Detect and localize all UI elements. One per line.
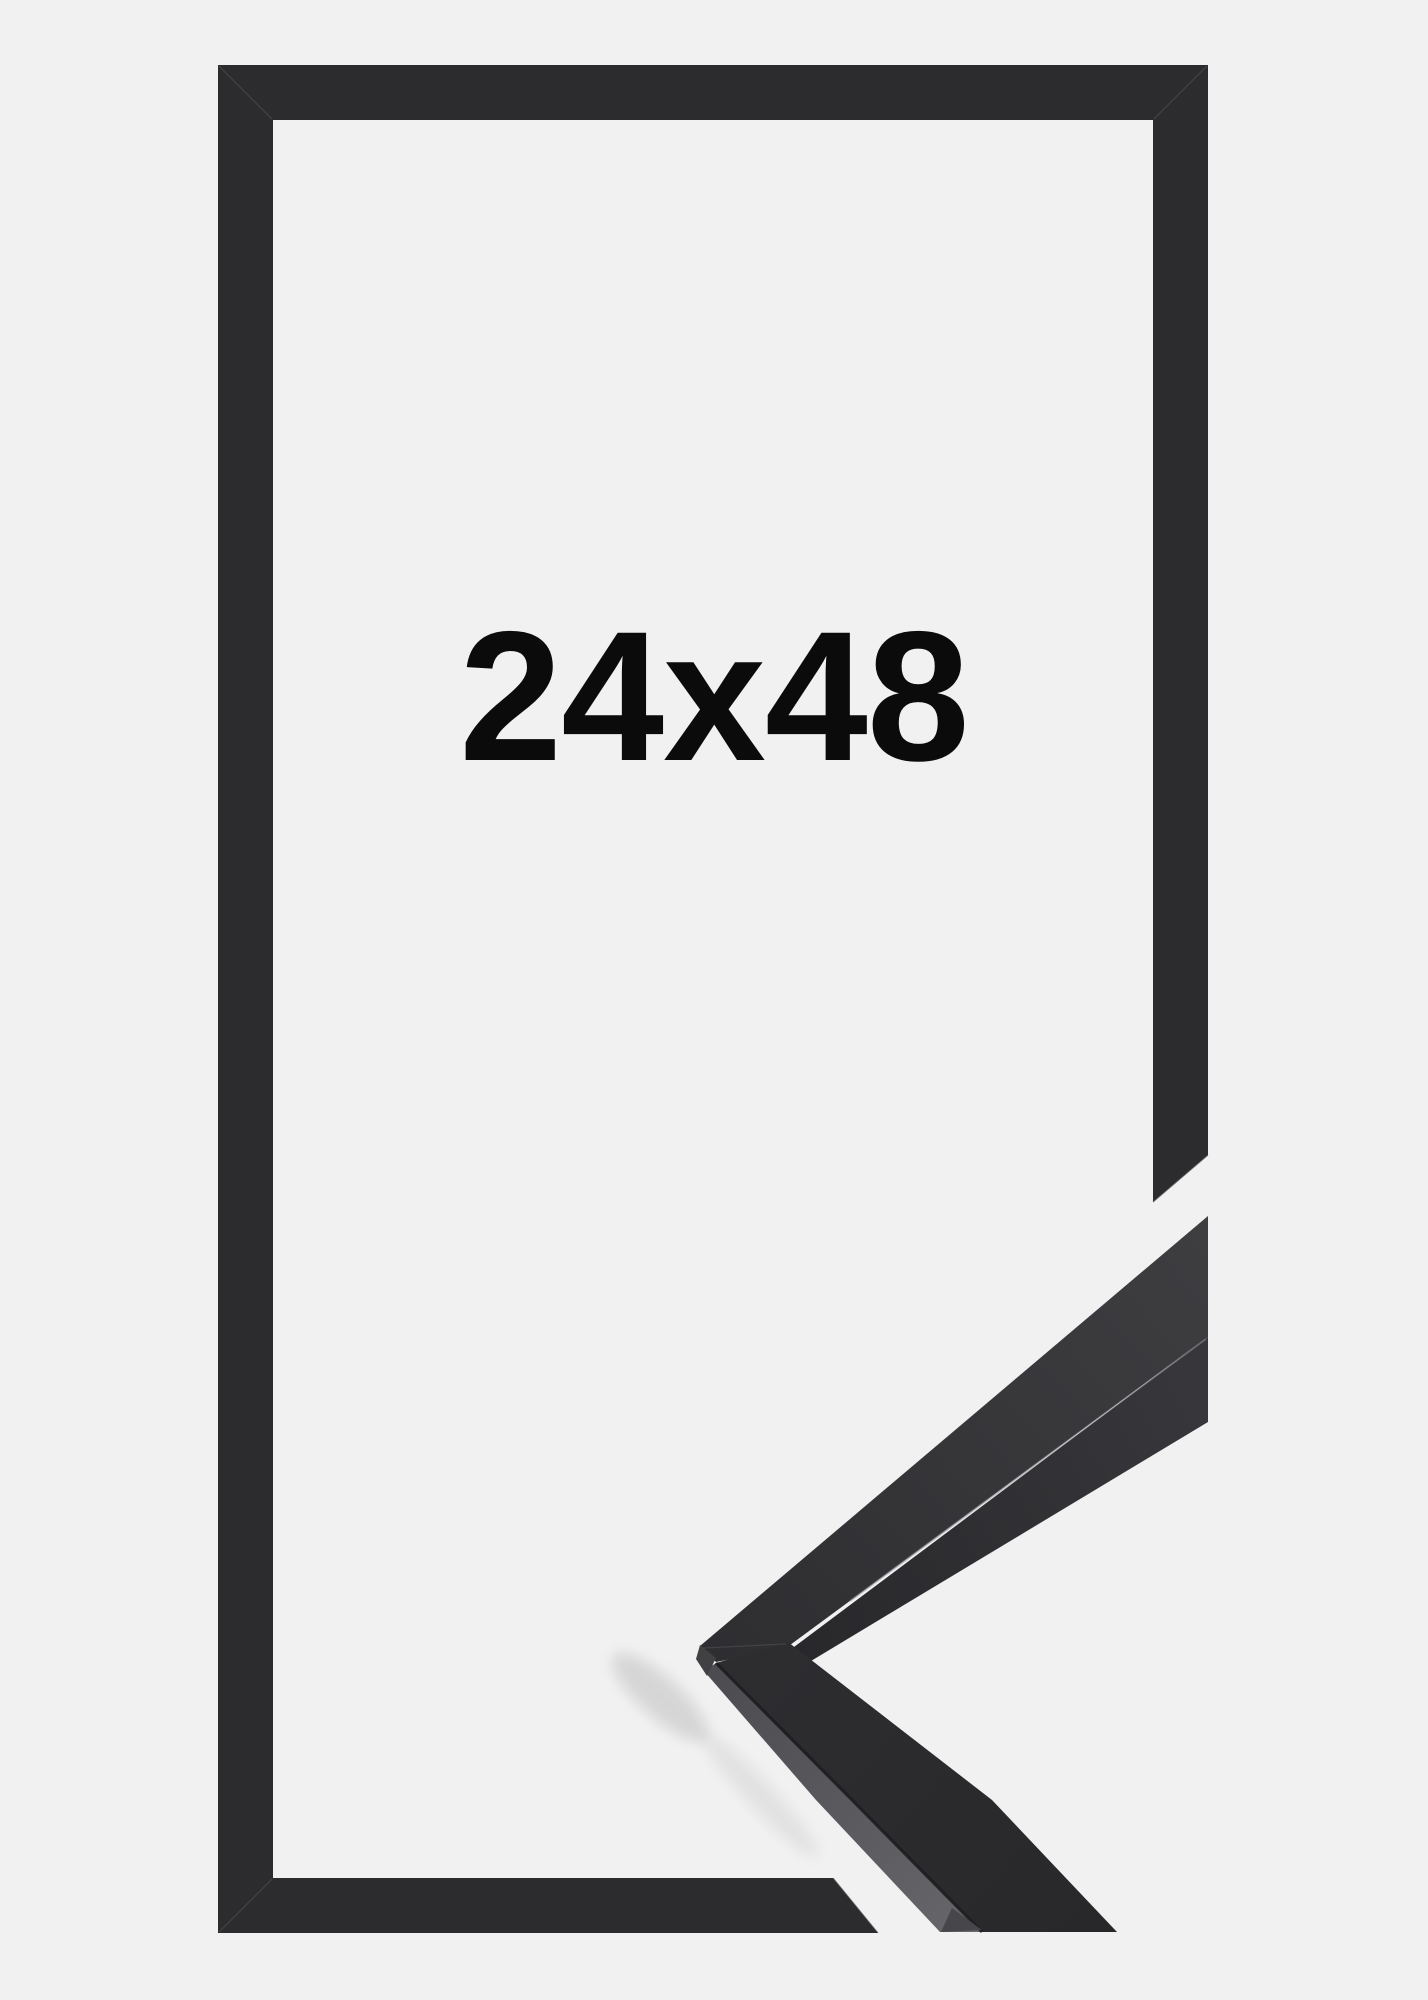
product-photo: 24x48 [0,0,1428,2000]
frame-product-photo: 24x48 [0,0,1428,2000]
photo-background [0,0,1428,2000]
size-label: 24x48 [459,594,968,800]
